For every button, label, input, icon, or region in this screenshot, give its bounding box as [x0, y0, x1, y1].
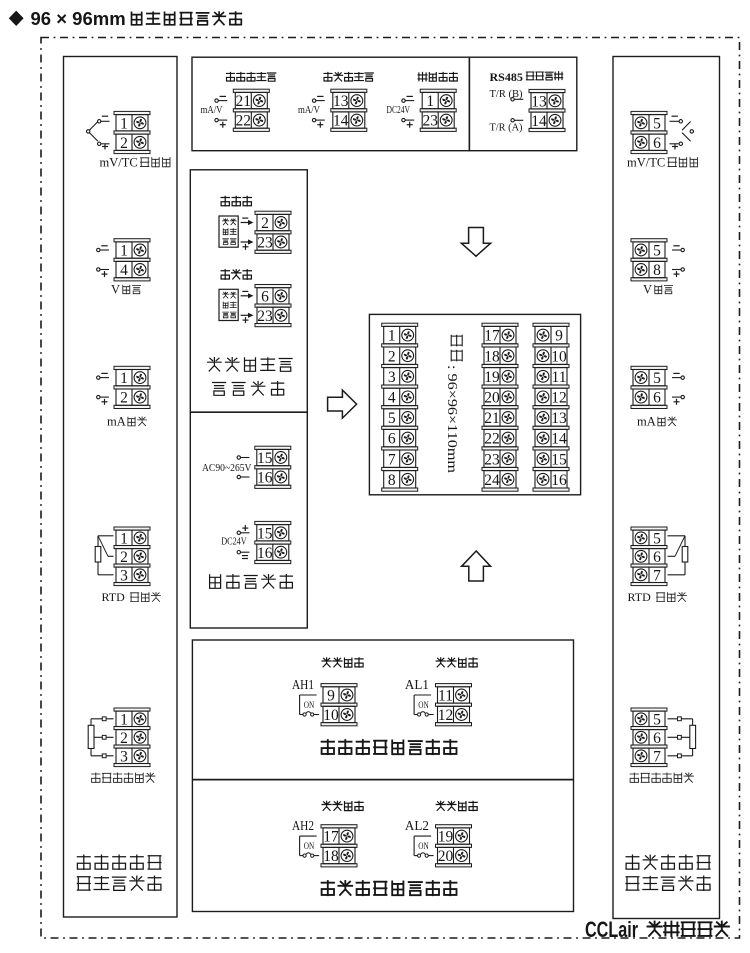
svg-text:6: 6: [653, 730, 661, 747]
svg-text:23: 23: [257, 308, 273, 325]
svg-text:15: 15: [551, 451, 567, 468]
svg-text:AC90~265V: AC90~265V: [202, 463, 252, 474]
svg-text:V: V: [111, 283, 120, 297]
svg-text:24: 24: [484, 472, 500, 489]
svg-text:18: 18: [323, 848, 339, 865]
svg-text:ON: ON: [418, 842, 429, 852]
svg-text:mV/TC: mV/TC: [100, 156, 138, 170]
svg-text:11: 11: [552, 369, 567, 386]
svg-text:5: 5: [653, 243, 661, 260]
svg-text:AL2: AL2: [405, 818, 429, 833]
svg-text:7: 7: [388, 451, 396, 468]
svg-text:23: 23: [422, 113, 438, 130]
svg-text:14: 14: [551, 431, 567, 448]
svg-text:13: 13: [531, 93, 547, 110]
svg-text:16: 16: [257, 470, 273, 487]
svg-text:6: 6: [388, 431, 396, 448]
svg-text:22: 22: [236, 113, 252, 130]
svg-text:ON: ON: [418, 701, 429, 711]
svg-text:: 96×96×110mm: : 96×96×110mm: [445, 365, 460, 473]
svg-text:6: 6: [653, 135, 661, 152]
svg-text:RTD: RTD: [628, 590, 652, 604]
svg-text:8: 8: [653, 262, 661, 279]
svg-text:17: 17: [484, 328, 500, 345]
svg-text:20: 20: [484, 389, 500, 406]
svg-text:23: 23: [484, 451, 500, 468]
svg-text:1: 1: [120, 530, 128, 547]
svg-text:15: 15: [257, 450, 273, 467]
svg-text:mA: mA: [637, 415, 656, 429]
svg-text:10: 10: [323, 707, 339, 724]
svg-text:T/R (B): T/R (B): [490, 88, 523, 100]
svg-text:1: 1: [120, 711, 128, 728]
svg-text:11: 11: [438, 688, 453, 705]
svg-text:16: 16: [257, 545, 273, 562]
svg-text:1: 1: [120, 370, 128, 387]
svg-text:2: 2: [261, 215, 269, 232]
svg-text:23: 23: [257, 235, 273, 252]
svg-text:CCLair: CCLair: [585, 917, 638, 942]
svg-text:4: 4: [388, 389, 396, 406]
svg-text:T/R (A): T/R (A): [490, 122, 523, 134]
svg-text:5: 5: [653, 711, 661, 728]
svg-text:RS485: RS485: [490, 70, 523, 84]
svg-text:7: 7: [653, 567, 661, 584]
svg-text:12: 12: [551, 389, 567, 406]
svg-text:22: 22: [484, 431, 500, 448]
svg-text:2: 2: [388, 348, 396, 365]
svg-text:8: 8: [388, 472, 396, 489]
svg-text:mA/V: mA/V: [201, 104, 223, 116]
svg-text:mA: mA: [107, 415, 126, 429]
svg-text:16: 16: [551, 472, 567, 489]
svg-text:DC24V: DC24V: [387, 104, 411, 116]
svg-text:96 × 96mm: 96 × 96mm: [31, 8, 126, 29]
svg-text:17: 17: [323, 829, 339, 846]
svg-text:3: 3: [120, 567, 128, 584]
svg-text:RTD: RTD: [102, 590, 126, 604]
svg-text:6: 6: [261, 288, 269, 305]
svg-text:mA/V: mA/V: [298, 104, 320, 116]
svg-text:3: 3: [388, 369, 396, 386]
svg-text:5: 5: [653, 370, 661, 387]
svg-text:13: 13: [551, 410, 567, 427]
svg-text:5: 5: [653, 115, 661, 132]
svg-text:15: 15: [257, 525, 273, 542]
svg-text:3: 3: [120, 748, 128, 765]
svg-text:1: 1: [120, 243, 128, 260]
svg-text:14: 14: [333, 113, 349, 130]
svg-text:AH1: AH1: [292, 677, 314, 692]
svg-text:13: 13: [333, 93, 349, 110]
svg-text:10: 10: [551, 348, 567, 365]
svg-text:2: 2: [120, 549, 128, 566]
svg-text:AL1: AL1: [405, 677, 429, 692]
svg-text:DC24V: DC24V: [221, 537, 247, 548]
svg-text:1: 1: [388, 328, 396, 345]
svg-text:ON: ON: [304, 701, 315, 711]
svg-text:2: 2: [120, 730, 128, 747]
svg-text:4: 4: [120, 262, 128, 279]
svg-text:5: 5: [388, 410, 396, 427]
svg-text:1: 1: [120, 115, 128, 132]
svg-text:12: 12: [438, 707, 454, 724]
svg-text:19: 19: [438, 829, 454, 846]
svg-text:7: 7: [653, 748, 661, 765]
svg-text:2: 2: [120, 390, 128, 407]
svg-text:20: 20: [438, 848, 454, 865]
svg-text:ON: ON: [304, 842, 315, 852]
svg-text:2: 2: [120, 135, 128, 152]
svg-text:18: 18: [484, 348, 500, 365]
svg-text:9: 9: [555, 328, 563, 345]
svg-text:19: 19: [484, 369, 500, 386]
svg-text:9: 9: [327, 688, 335, 705]
svg-text:14: 14: [531, 113, 547, 130]
svg-text:5: 5: [653, 530, 661, 547]
svg-text:mV/TC: mV/TC: [627, 156, 665, 170]
svg-text:21: 21: [484, 410, 500, 427]
svg-text:6: 6: [653, 390, 661, 407]
svg-text:21: 21: [236, 93, 252, 110]
svg-text:V: V: [643, 283, 652, 297]
svg-text:AH2: AH2: [292, 818, 314, 833]
svg-text:1: 1: [426, 93, 434, 110]
svg-text:6: 6: [653, 549, 661, 566]
